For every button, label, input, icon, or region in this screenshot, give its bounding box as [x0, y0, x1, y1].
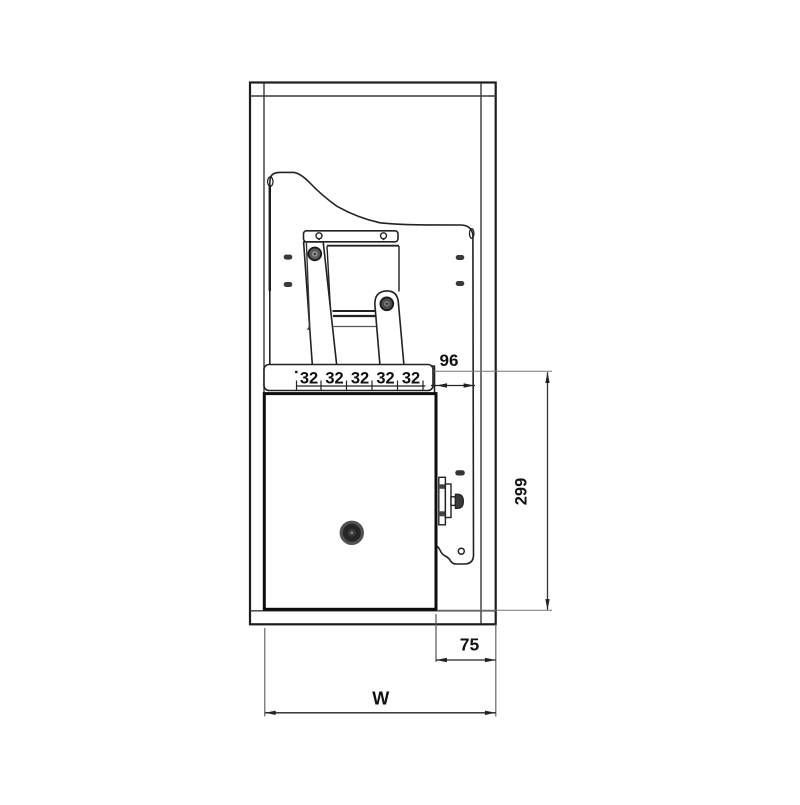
svg-text:32: 32: [376, 370, 394, 388]
svg-text:32: 32: [402, 370, 420, 388]
svg-text:75: 75: [460, 635, 480, 655]
svg-text:299: 299: [513, 478, 531, 506]
svg-text:32: 32: [351, 370, 369, 388]
svg-text:32: 32: [300, 370, 318, 388]
svg-text:96: 96: [440, 351, 459, 370]
svg-text:32: 32: [325, 370, 343, 388]
svg-text:W: W: [372, 689, 389, 709]
